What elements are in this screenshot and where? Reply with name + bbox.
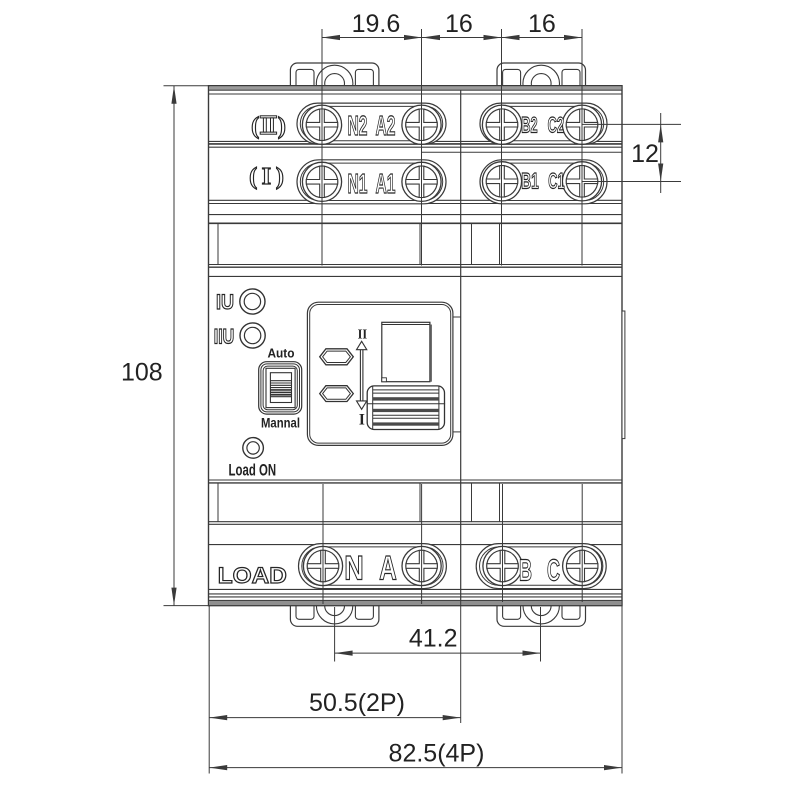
svg-text:12: 12 <box>631 140 659 168</box>
svg-text:N1: N1 <box>348 168 368 199</box>
svg-text:Mannal: Mannal <box>261 416 300 431</box>
svg-text:Load ON: Load ON <box>229 461 277 479</box>
svg-text:16: 16 <box>445 10 473 38</box>
svg-text:19.6: 19.6 <box>352 10 401 38</box>
svg-text:I: I <box>359 411 365 428</box>
svg-text:41.2: 41.2 <box>409 625 458 653</box>
svg-text:C: C <box>547 552 560 587</box>
svg-text:IU: IU <box>216 291 234 314</box>
svg-text:LOAD: LOAD <box>218 563 287 588</box>
svg-text:C2: C2 <box>548 112 564 137</box>
svg-text:A1: A1 <box>376 168 396 199</box>
svg-text:): ) <box>278 113 286 140</box>
svg-text:N2: N2 <box>348 110 368 141</box>
svg-text:B: B <box>519 552 532 587</box>
svg-text:B2: B2 <box>521 112 537 137</box>
svg-text:16: 16 <box>528 10 556 38</box>
svg-text:50.5(2P): 50.5(2P) <box>309 689 405 717</box>
svg-text:IIU: IIU <box>214 325 235 348</box>
svg-text:B1: B1 <box>521 168 539 193</box>
svg-text:A: A <box>379 550 397 588</box>
svg-text:I: I <box>262 163 272 190</box>
svg-text:108: 108 <box>121 359 163 387</box>
svg-text:A2: A2 <box>376 110 396 141</box>
svg-text:): ) <box>276 163 284 190</box>
svg-text:(: ( <box>249 163 257 190</box>
svg-text:(: ( <box>251 113 259 140</box>
svg-text:Auto: Auto <box>268 346 295 360</box>
svg-text:82.5(4P): 82.5(4P) <box>389 740 485 768</box>
svg-text:N: N <box>344 550 364 588</box>
svg-text:II: II <box>358 328 368 343</box>
svg-text:C1: C1 <box>548 168 564 193</box>
